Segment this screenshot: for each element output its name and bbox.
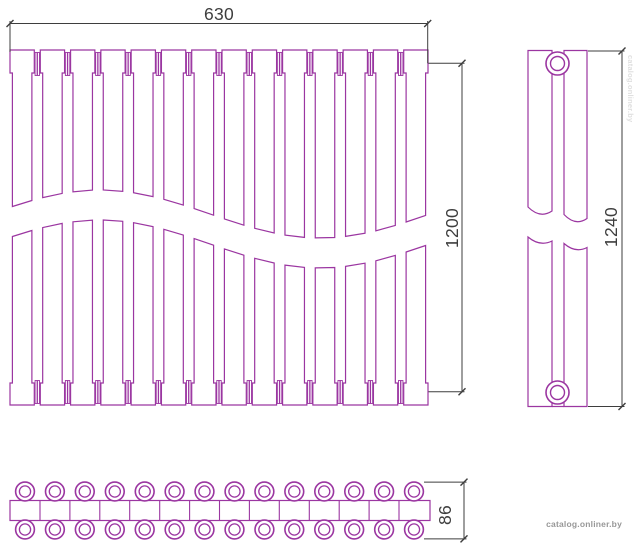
tube-inner-circle [229, 486, 240, 497]
connector-top [187, 53, 189, 76]
connector-bottom [371, 381, 373, 404]
tube-inner-circle [79, 486, 90, 497]
technical-drawing-canvas: 630 1200 1240 86 catalog.onliner.by cata… [0, 0, 634, 550]
connector-top [156, 53, 158, 76]
section-lower [10, 231, 34, 406]
section-lower [131, 223, 155, 405]
section-lower [373, 255, 397, 405]
side-bar-piece [564, 51, 587, 222]
front-sections [10, 50, 428, 405]
connector-bottom [189, 381, 191, 404]
section-upper [404, 50, 428, 222]
radiator-drawing: 630 1200 1240 86 [0, 0, 634, 550]
connector-bottom [308, 381, 310, 404]
tube-inner-circle [199, 524, 210, 535]
tube-inner-circle [169, 524, 180, 535]
connector-top [128, 53, 130, 76]
section-lower [161, 229, 185, 405]
tube-inner-circle [109, 524, 120, 535]
tube-inner-circle [229, 524, 240, 535]
section-lower [313, 268, 337, 406]
connector-top [280, 53, 282, 76]
tube-inner-circle [319, 524, 330, 535]
tube-inner-circle [259, 486, 270, 497]
connector-bottom [340, 381, 342, 404]
tube-inner-circle [19, 524, 30, 535]
section-upper [101, 50, 125, 191]
tube-inner-circle [49, 486, 60, 497]
section-lower [40, 223, 64, 405]
tube-inner-circle [109, 486, 120, 497]
side-bar-piece [528, 51, 552, 215]
connector-bottom [219, 381, 221, 404]
section-upper [313, 50, 337, 238]
connector-top [219, 53, 221, 76]
section-lower [192, 239, 216, 405]
tube-inner-circle [408, 486, 419, 497]
section-upper [10, 50, 34, 207]
tube-inner-circle [319, 486, 330, 497]
tube-inner-circle [79, 524, 90, 535]
connector-top [368, 53, 370, 76]
section-upper [131, 50, 155, 197]
connector-bottom [65, 381, 67, 404]
section-upper [283, 50, 307, 237]
connector-bottom [68, 381, 70, 404]
dim-width-label: 630 [204, 4, 234, 24]
connector-bottom [128, 381, 130, 404]
connector-bottom [338, 381, 340, 404]
connector-top [65, 53, 67, 76]
watermark-bottom-right: catalog.onliner.by [546, 519, 622, 529]
section-lower [222, 249, 246, 405]
watermark-right-edge: catalog.onliner.by [626, 55, 634, 122]
tube-inner-circle [139, 486, 150, 497]
connector-top [310, 53, 312, 76]
section-upper [161, 50, 185, 205]
section-upper [252, 50, 276, 233]
connector-top [338, 53, 340, 76]
side-bar-piece [528, 237, 552, 407]
collector-inner-circle [551, 57, 565, 71]
connector-top [37, 53, 39, 76]
connector-bottom [35, 381, 37, 404]
tube-inner-circle [379, 524, 390, 535]
connector-bottom [368, 381, 370, 404]
section-upper [192, 50, 216, 215]
side-bars [528, 51, 587, 407]
section-lower [283, 265, 307, 405]
dim-depth-label: 86 [435, 505, 455, 525]
section-upper [40, 50, 64, 198]
connector-bottom [247, 381, 249, 404]
connector-top [371, 53, 373, 76]
connector-top [249, 53, 251, 76]
section-lower [71, 220, 95, 405]
connector-top [247, 53, 249, 76]
connector-bottom [98, 381, 100, 404]
side-bar-piece [564, 244, 587, 407]
tube-inner-circle [169, 486, 180, 497]
section-upper [222, 50, 246, 225]
connector-bottom [156, 381, 158, 404]
side-view [528, 51, 587, 407]
connector-bottom [249, 381, 251, 404]
connector-top [189, 53, 191, 76]
connector-top [159, 53, 161, 76]
front-view [10, 50, 428, 405]
section-lower [343, 263, 367, 405]
section-lower [404, 246, 428, 406]
connector-bottom [401, 381, 403, 404]
tube-inner-circle [139, 524, 150, 535]
collector-band [10, 501, 430, 521]
tube-inner-circle [259, 524, 270, 535]
section-upper [343, 50, 367, 236]
connector-top [126, 53, 128, 76]
section-lower [101, 220, 125, 405]
connector-bottom [217, 381, 219, 404]
tube-inner-circle [199, 486, 210, 497]
connector-top [35, 53, 37, 76]
connector-top [217, 53, 219, 76]
connector-top [308, 53, 310, 76]
tube-inner-circle [408, 524, 419, 535]
section-upper [71, 50, 95, 192]
connector-top [399, 53, 401, 76]
connector-top [96, 53, 98, 76]
connector-top [401, 53, 403, 76]
connector-bottom [37, 381, 39, 404]
dim-height-label: 1200 [442, 208, 462, 248]
connector-top [98, 53, 100, 76]
tube-inner-circle [19, 486, 30, 497]
connector-bottom [126, 381, 128, 404]
connector-bottom [399, 381, 401, 404]
connector-top [277, 53, 279, 76]
tube-inner-circle [349, 486, 360, 497]
connector-bottom [280, 381, 282, 404]
section-lower [252, 258, 276, 405]
connector-top [68, 53, 70, 76]
tube-inner-circle [379, 486, 390, 497]
connector-bottom [159, 381, 161, 404]
tube-inner-circle [289, 524, 300, 535]
connector-bottom [277, 381, 279, 404]
tube-inner-circle [349, 524, 360, 535]
connector-bottom [187, 381, 189, 404]
dim-side-height-label: 1240 [601, 207, 621, 247]
section-upper [373, 50, 397, 231]
connector-bottom [96, 381, 98, 404]
collector-inner-circle [551, 386, 565, 400]
connector-top [340, 53, 342, 76]
tube-inner-circle [289, 486, 300, 497]
connector-bottom [310, 381, 312, 404]
top-view [10, 482, 430, 539]
tube-inner-circle [49, 524, 60, 535]
